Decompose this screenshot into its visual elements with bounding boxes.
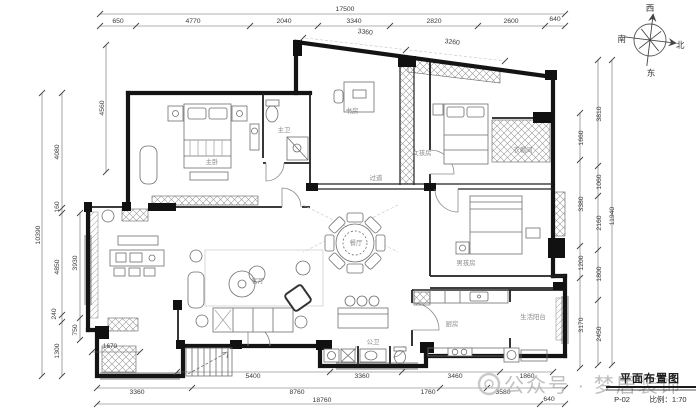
compass-west-label: 西 <box>646 3 655 13</box>
sheet-number: P-02 <box>614 395 630 404</box>
dim-label: 650 <box>112 18 124 25</box>
dim-label: 4560 <box>99 100 106 115</box>
dim-label: 3460 <box>447 373 462 380</box>
room-label-study: 书房 <box>346 106 359 115</box>
dim-label: 640 <box>543 396 555 403</box>
drawing-title: 平面布置图 <box>620 371 680 385</box>
furniture <box>102 82 547 376</box>
room-label-girl: 女孩房 <box>412 148 431 157</box>
dim-left-total: 10390 <box>35 225 42 244</box>
dim-label: 640 <box>549 16 561 23</box>
dim-label: 240 <box>51 308 58 320</box>
dim-label: 1300 <box>54 343 61 358</box>
dim-label: 3360 <box>357 28 373 37</box>
compass-north-label: 北 <box>676 40 685 50</box>
dim-label: 2160 <box>596 215 603 230</box>
room-label-master: 主卧 <box>206 157 219 166</box>
dim-label: 2820 <box>426 18 441 25</box>
room-label-living: 客厅 <box>252 276 265 285</box>
room-label-master-bath: 主卫 <box>278 125 291 134</box>
dim-label: 4770 <box>185 18 200 25</box>
room-label-kitchen: 厨房 <box>446 319 459 328</box>
watermark-logo-icon <box>479 374 499 394</box>
dim-label: 2040 <box>276 18 291 25</box>
room-label-cloak: 衣帽间 <box>513 145 532 154</box>
dim-label: 1800 <box>596 266 603 281</box>
dim-label: 8760 <box>289 389 304 396</box>
dim-label: 3930 <box>72 255 79 270</box>
dim-label: 1200 <box>578 255 585 270</box>
room-label-corridor: 过道 <box>370 173 383 182</box>
room-label-dining: 餐厅 <box>350 238 363 247</box>
dim-label: 4080 <box>54 144 61 159</box>
dim-label: 2450 <box>596 326 603 341</box>
dim-label: 3360 <box>129 389 144 396</box>
dim-label: 1760 <box>420 389 435 396</box>
dim-label: 1660 <box>578 130 585 145</box>
dim-label: 1670 <box>103 343 118 350</box>
dim-label: 3360 <box>354 373 369 380</box>
scale-label: 比例：1:70 <box>649 394 686 404</box>
dim-label: 160 <box>54 201 61 213</box>
dim-label: 4850 <box>54 259 61 274</box>
dim-right-total: 11940 <box>609 207 616 226</box>
room-label-boy: 男孩房 <box>456 258 475 267</box>
dim-label: 3810 <box>596 106 603 121</box>
dim-bottom-total: 18760 <box>313 397 332 404</box>
dim-label: 5400 <box>245 373 260 380</box>
dim-top-total: 17500 <box>336 6 355 13</box>
room-label-bath: 公卫 <box>367 338 380 346</box>
room-label-service-balcony: 生活阳台 <box>520 312 546 321</box>
dim-label: 750 <box>72 324 79 336</box>
floor-plan-canvas: 17500 650 4770 2040 3340 2820 2600 640 3… <box>0 0 699 418</box>
dim-label: 3340 <box>346 18 361 25</box>
title-block: 平面布置图 P-02 比例：1:70 <box>606 371 696 404</box>
compass-east-label: 东 <box>647 68 656 78</box>
dim-label: 2600 <box>503 18 518 25</box>
compass-south-label: 南 <box>617 34 626 44</box>
floor-plan-drawing: 17500 650 4770 2040 3340 2820 2600 640 3… <box>0 0 699 418</box>
dim-label: 1060 <box>596 174 603 189</box>
compass-rose: 西 南 北 东 <box>617 3 685 78</box>
dim-label: 3380 <box>578 196 585 211</box>
dim-label: 3260 <box>444 38 460 47</box>
dim-label: 3170 <box>578 317 585 332</box>
